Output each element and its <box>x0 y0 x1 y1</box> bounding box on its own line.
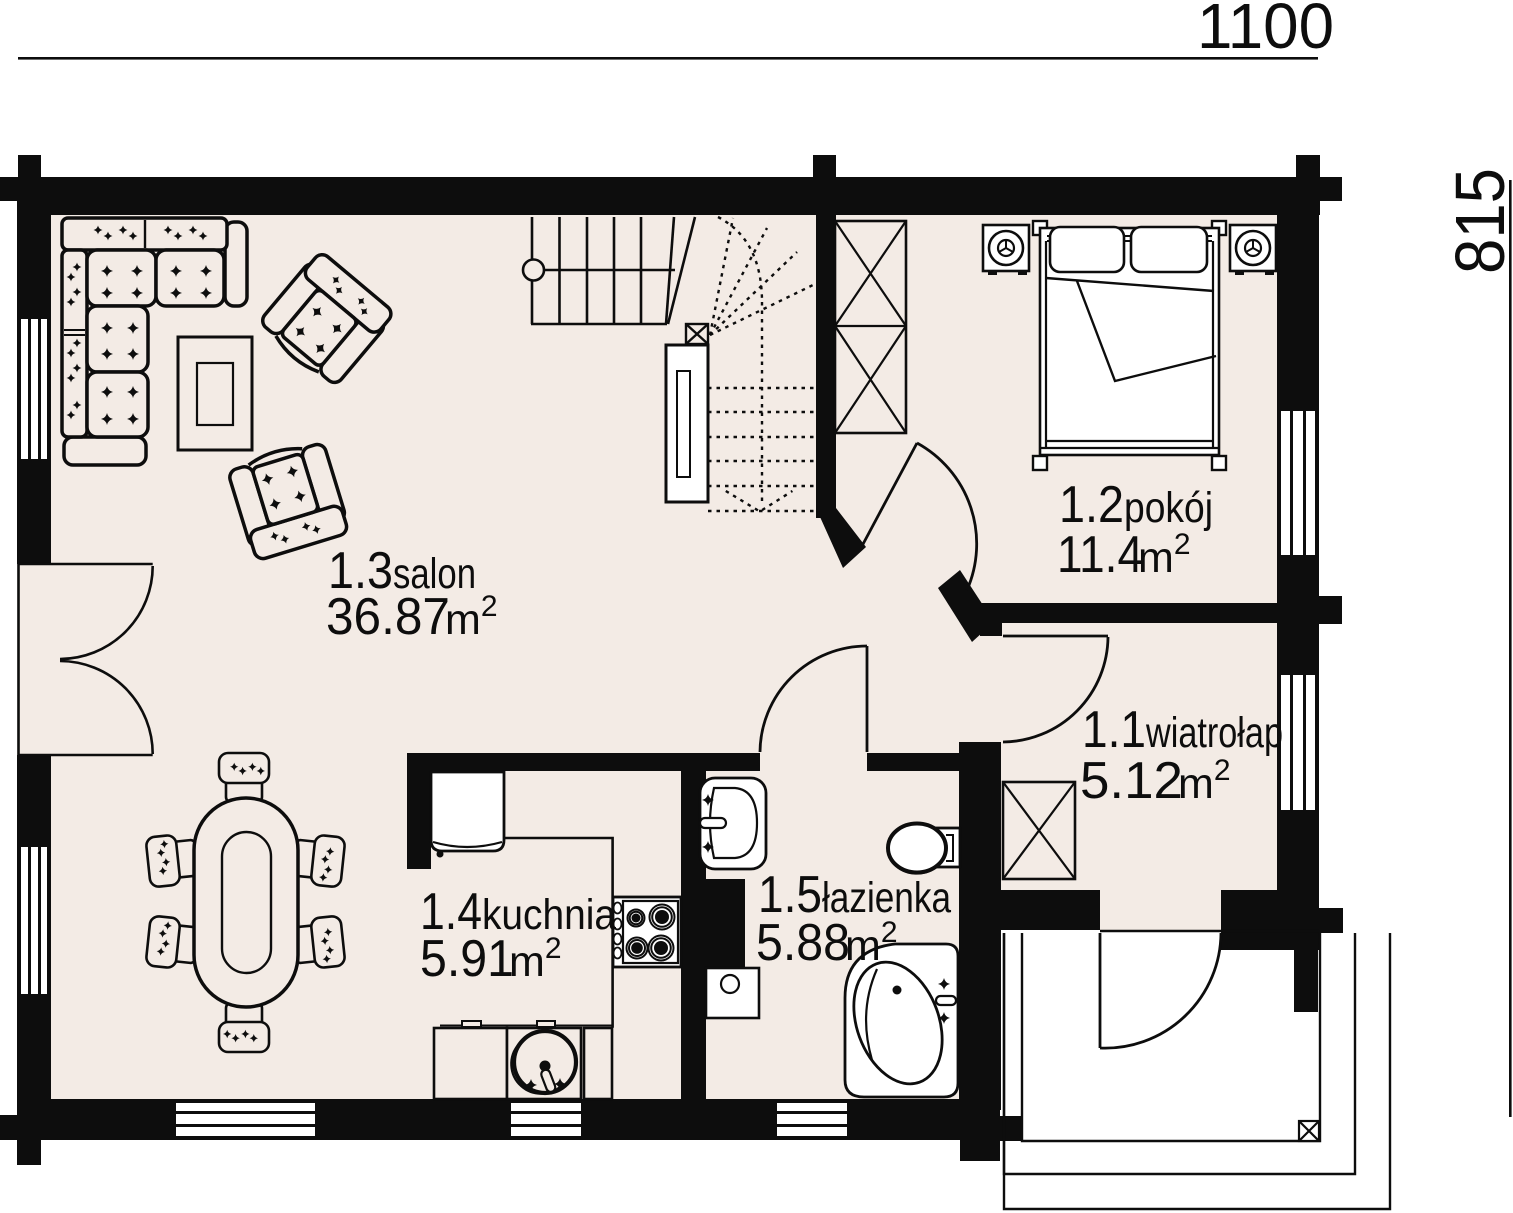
svg-text:11.4m2: 11.4m2 <box>1057 526 1191 584</box>
svg-text:1100: 1100 <box>1197 0 1334 62</box>
svg-text:5.12m2: 5.12m2 <box>1080 752 1231 810</box>
svg-text:815: 815 <box>1441 168 1513 274</box>
svg-text:5.88m2: 5.88m2 <box>756 914 898 972</box>
svg-text:36.87m2: 36.87m2 <box>326 588 498 646</box>
svg-text:5.91m2: 5.91m2 <box>420 930 562 988</box>
svg-text:1.1wiatrołap: 1.1wiatrołap <box>1082 701 1283 759</box>
